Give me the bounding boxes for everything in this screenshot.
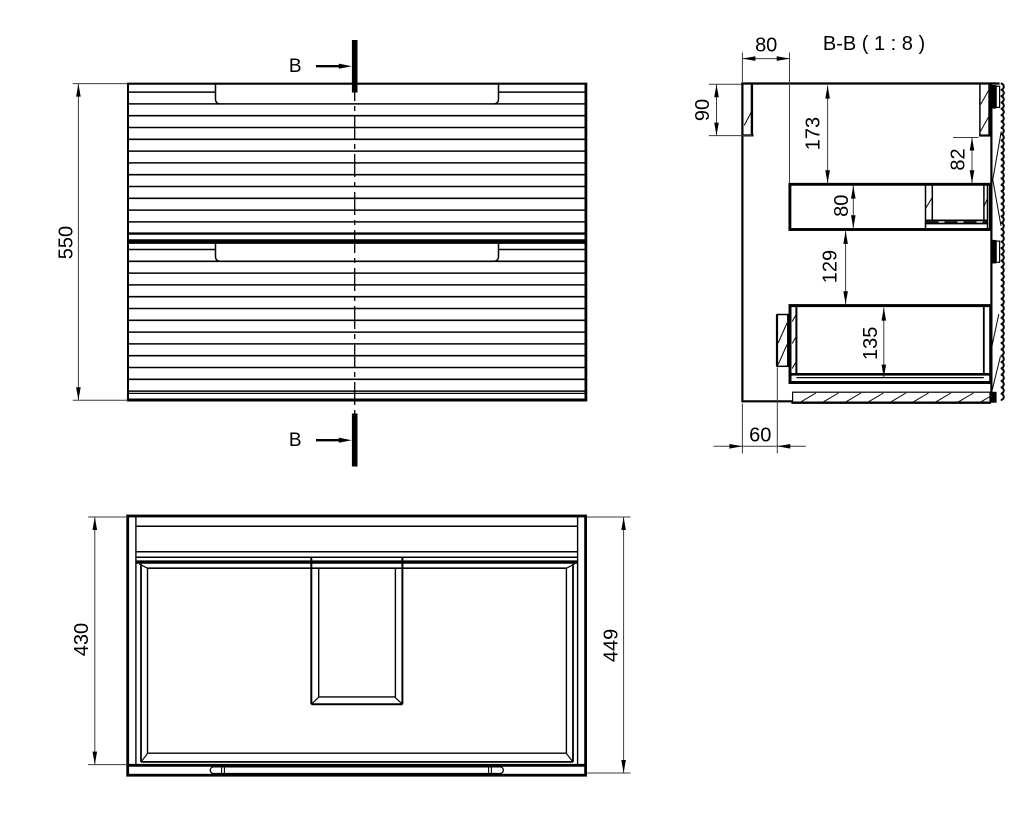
- svg-text:B: B: [289, 56, 302, 77]
- svg-text:173: 173: [802, 117, 824, 150]
- svg-text:550: 550: [55, 226, 77, 259]
- svg-text:B-B ( 1 : 8 ): B-B ( 1 : 8 ): [823, 33, 925, 55]
- svg-text:90: 90: [692, 99, 714, 121]
- svg-text:80: 80: [755, 35, 777, 57]
- svg-text:430: 430: [71, 623, 93, 656]
- svg-text:135: 135: [860, 327, 882, 360]
- svg-text:80: 80: [831, 195, 853, 217]
- svg-text:129: 129: [819, 250, 841, 283]
- svg-text:60: 60: [749, 425, 771, 447]
- svg-text:449: 449: [601, 629, 623, 662]
- svg-text:B: B: [289, 430, 302, 451]
- svg-text:82: 82: [947, 148, 969, 170]
